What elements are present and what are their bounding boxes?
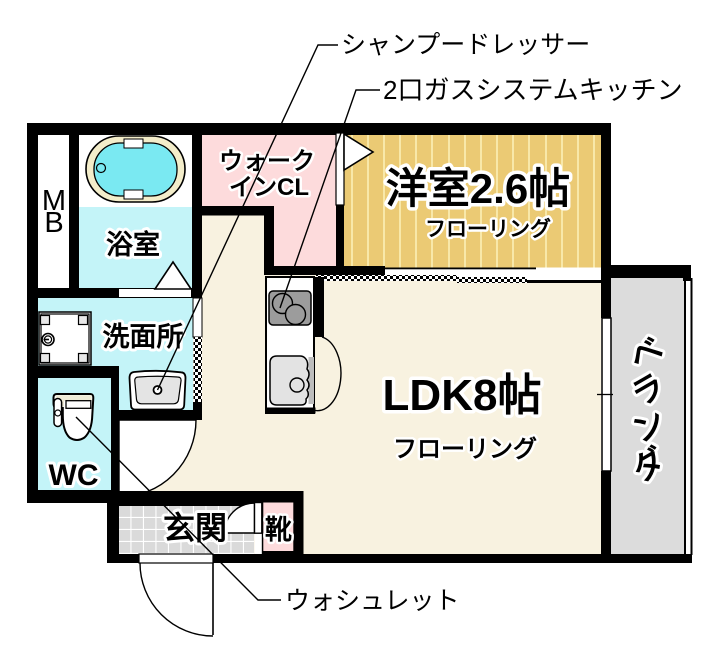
svg-text:シャンプードレッサー: シャンプードレッサー xyxy=(341,31,590,59)
svg-text:靴: 靴 xyxy=(265,515,292,545)
svg-text:ウォーク: ウォーク xyxy=(219,148,315,175)
svg-text:B: B xyxy=(44,207,63,239)
svg-text:LDK8帖: LDK8帖 xyxy=(383,371,542,420)
svg-text:浴室: 浴室 xyxy=(106,229,160,260)
svg-text:WC: WC xyxy=(49,459,99,492)
svg-text:洗面所: 洗面所 xyxy=(103,322,184,352)
svg-text:インCL: インCL xyxy=(229,174,309,201)
svg-text:ウォシュレット: ウォシュレット xyxy=(285,587,460,615)
svg-text:玄関: 玄関 xyxy=(163,510,227,546)
svg-text:フローリング: フローリング xyxy=(393,436,537,463)
svg-text:2口ガスシステムキッチン: 2口ガスシステムキッチン xyxy=(383,75,683,105)
svg-text:フローリング: フローリング xyxy=(425,217,551,241)
svg-text:洋室2.6帖: 洋室2.6帖 xyxy=(386,165,570,212)
